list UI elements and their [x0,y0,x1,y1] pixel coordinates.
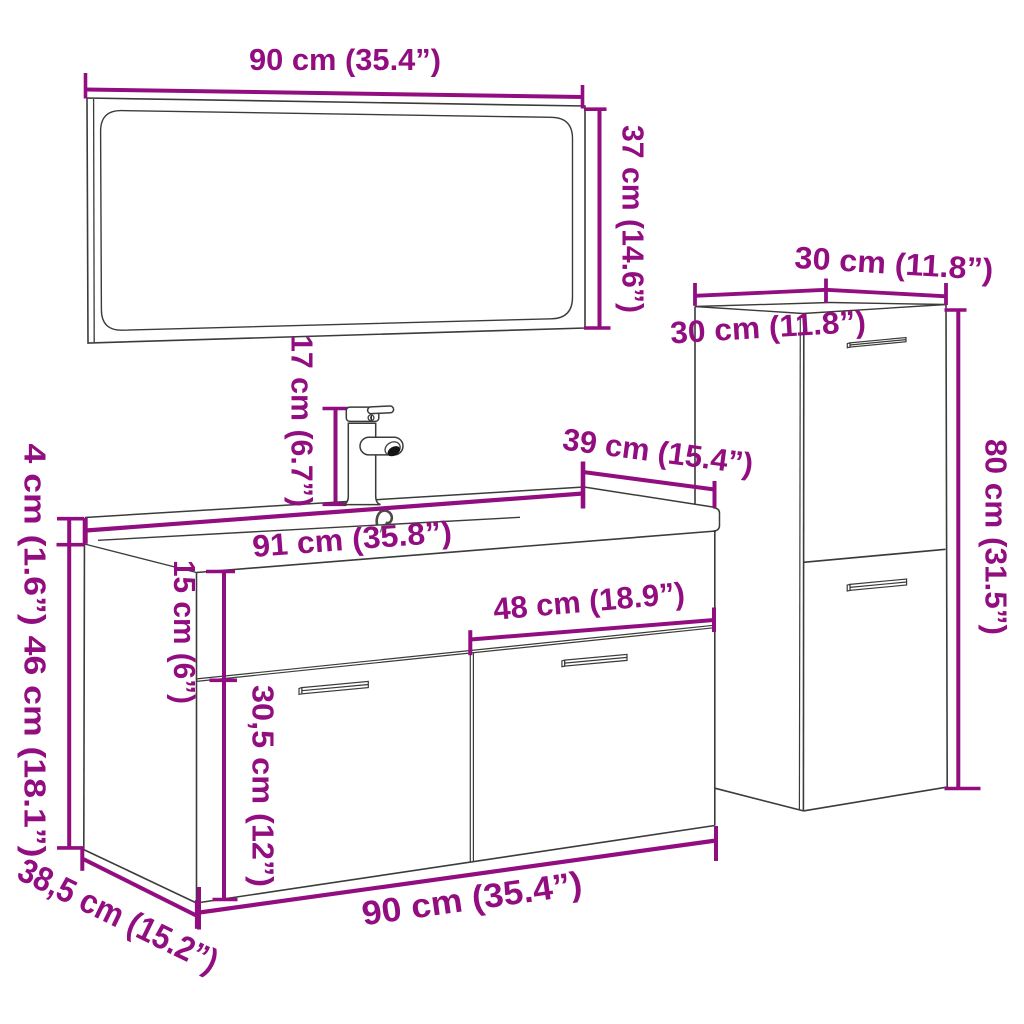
svg-text:15 cm (6”): 15 cm (6”) [167,560,202,704]
svg-text:37 cm (14.6”): 37 cm (14.6”) [616,125,651,313]
svg-text:90 cm (35.4”): 90 cm (35.4”) [249,42,441,77]
svg-text:4 cm (1.6”) 46 cm (18.1”): 4 cm (1.6”) 46 cm (18.1”) [18,444,53,858]
svg-text:17 cm (6.7”): 17 cm (6.7”) [285,335,320,507]
svg-text:30,5 cm (12”): 30,5 cm (12”) [246,685,281,887]
svg-text:80 cm (31.5”): 80 cm (31.5”) [979,439,1014,635]
svg-text:30 cm (11.8”): 30 cm (11.8”) [794,240,995,287]
